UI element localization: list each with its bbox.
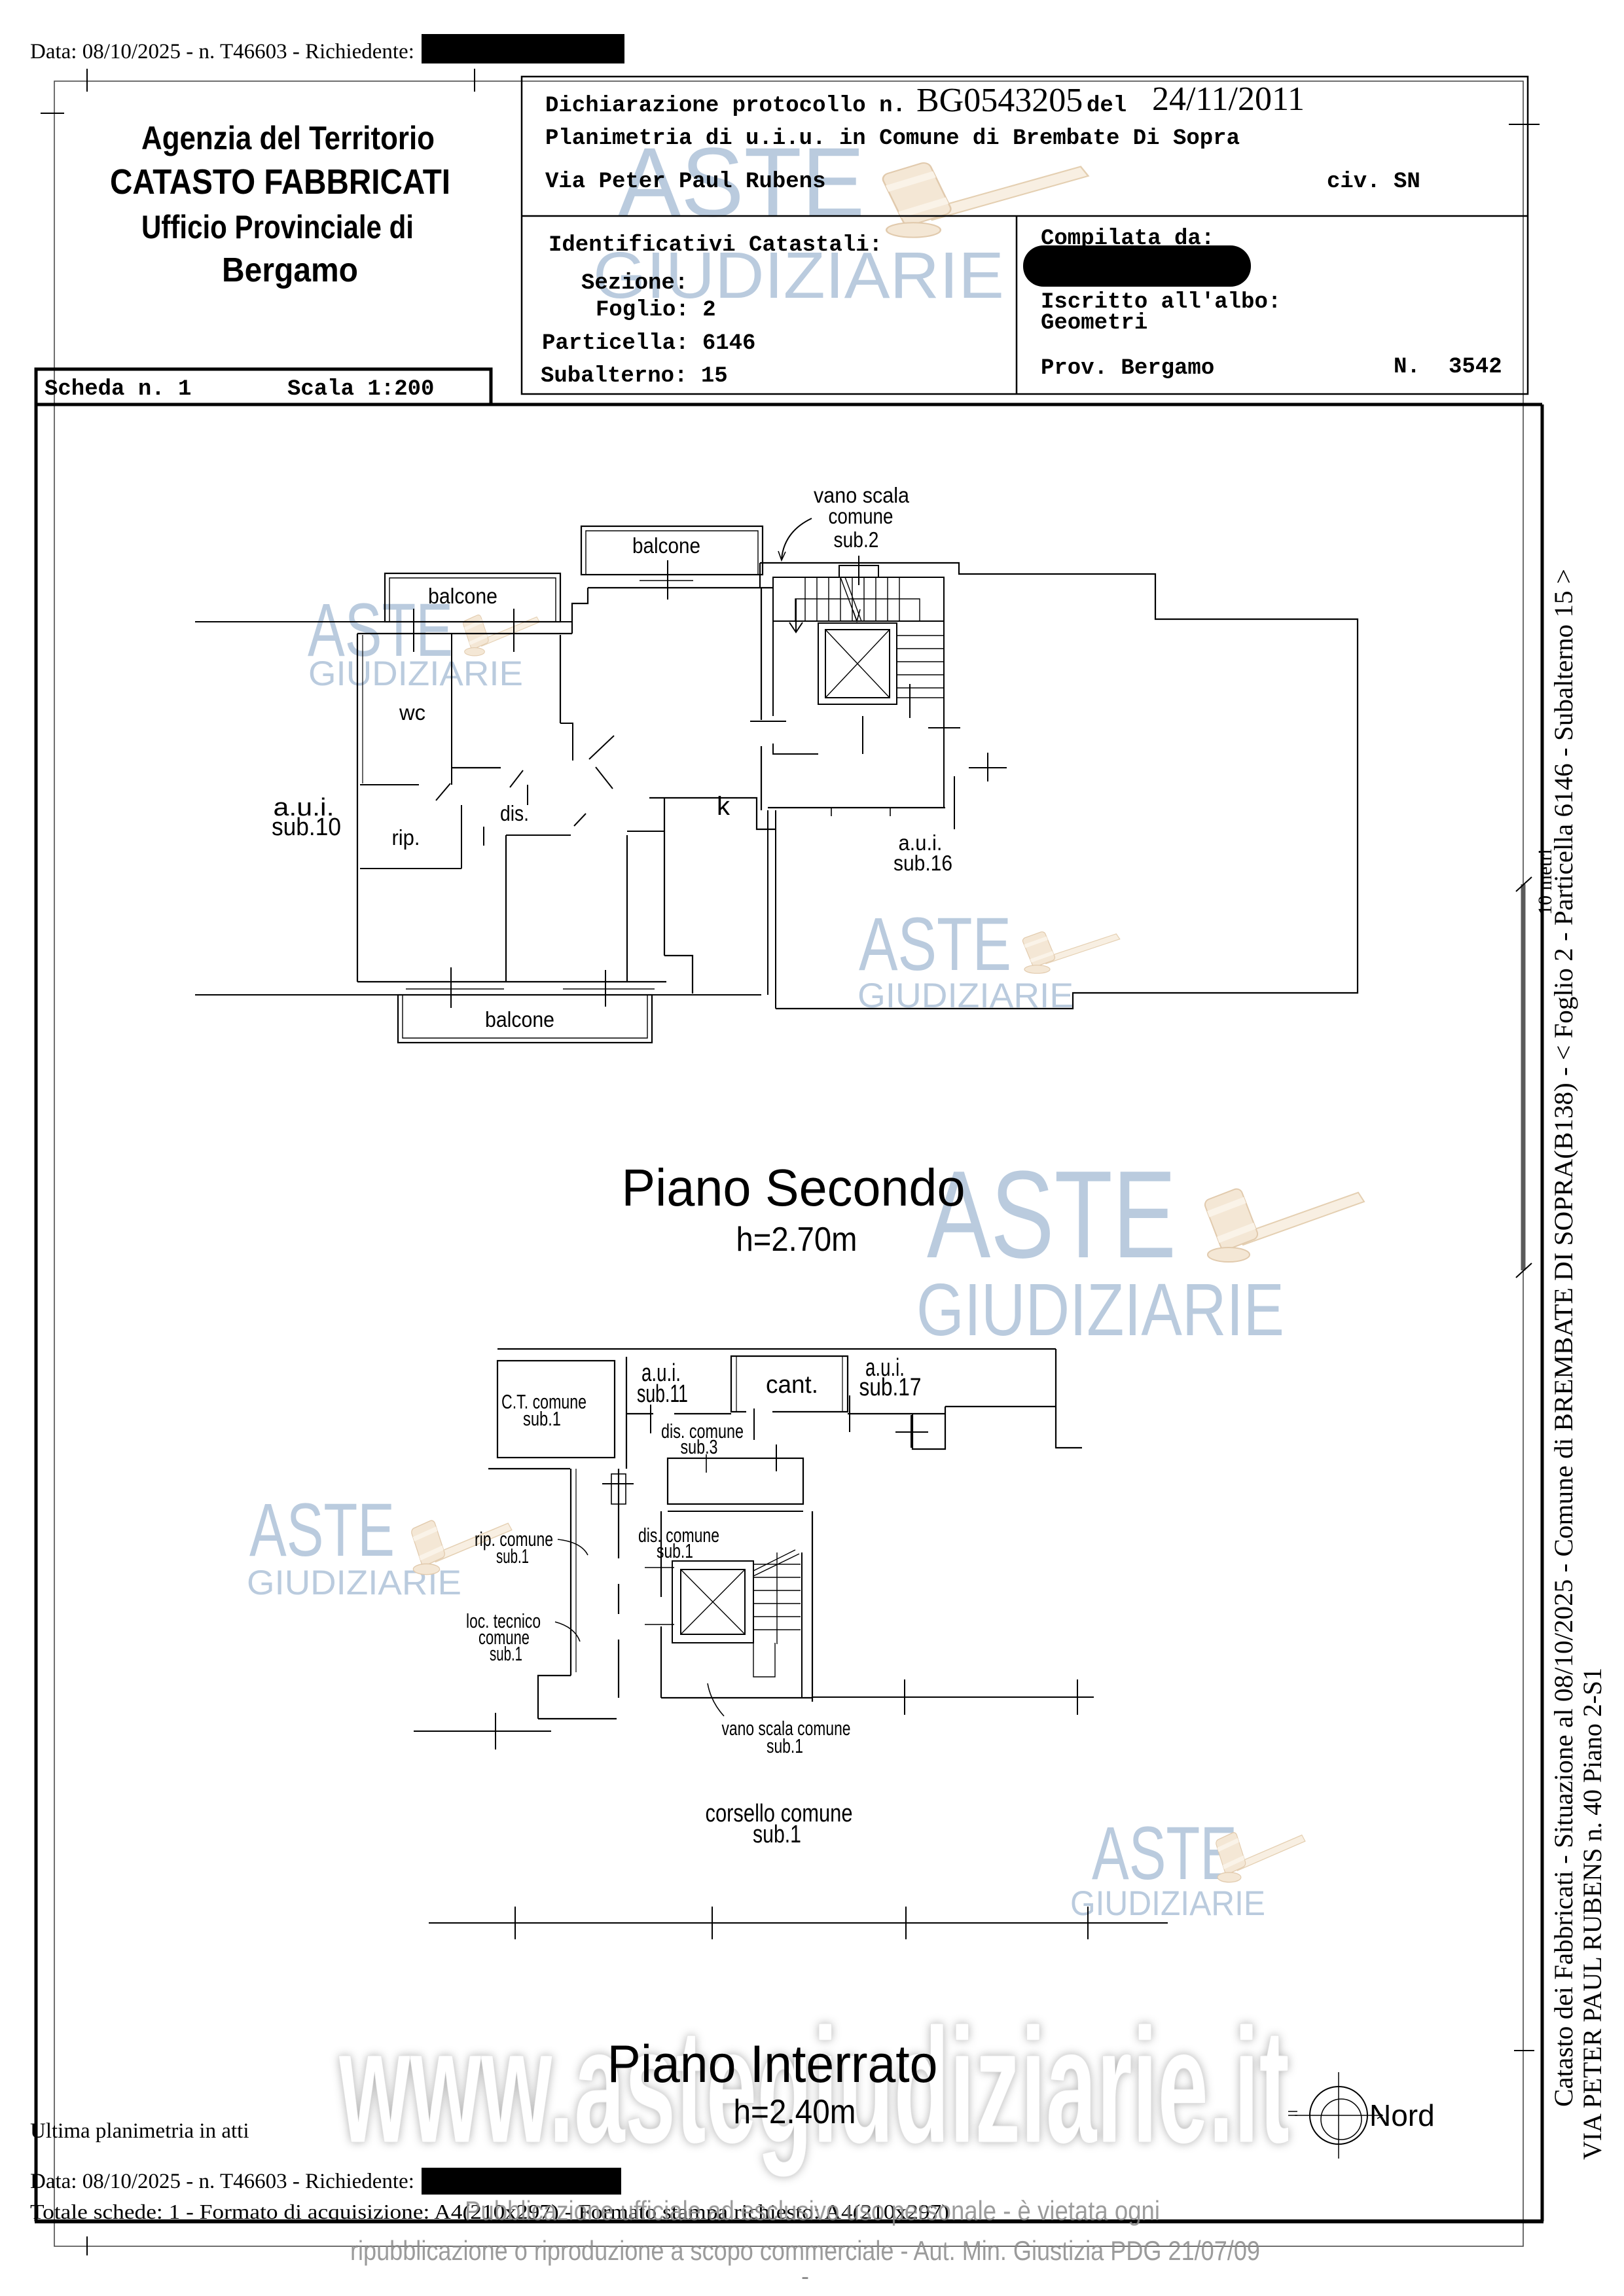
svg-text:sub.11: sub.11 <box>637 1380 688 1408</box>
svg-text:3542: 3542 <box>1449 355 1502 380</box>
svg-text:24/11/2011: 24/11/2011 <box>1152 81 1305 118</box>
svg-text:h=2.70m: h=2.70m <box>736 1221 857 1259</box>
svg-text:sub.1: sub.1 <box>496 1545 529 1568</box>
svg-text:sub.1: sub.1 <box>767 1734 803 1757</box>
svg-text:Sezione:: Sezione: <box>581 271 688 296</box>
svg-text:ASTE: ASTE <box>1092 1812 1237 1895</box>
svg-text:Subalterno: 15: Subalterno: 15 <box>541 364 728 389</box>
svg-text:Ufficio Provinciale di: Ufficio Provinciale di <box>141 209 414 245</box>
svg-text:Agenzia del Territorio: Agenzia del Territorio <box>141 120 435 156</box>
svg-text:Foglio: 2: Foglio: 2 <box>596 298 716 323</box>
svg-text:balcone: balcone <box>428 584 497 608</box>
svg-text:Scheda n. 1: Scheda n. 1 <box>45 377 191 402</box>
svg-text:GIUDIZIARIE: GIUDIZIARIE <box>916 1268 1284 1351</box>
svg-text:Via Peter Paul Rubens: Via Peter Paul Rubens <box>545 170 825 194</box>
svg-text:VIA PETER PAUL RUBENS n. 40 Pi: VIA PETER PAUL RUBENS n. 40 Piano 2-S1 <box>1578 1668 1607 2160</box>
svg-text:ASTE: ASTE <box>859 903 1011 986</box>
svg-text:h=2.40m: h=2.40m <box>734 2093 856 2131</box>
svg-text:Identificativi Catastali:: Identificativi Catastali: <box>549 233 882 258</box>
svg-text:Bergamo: Bergamo <box>222 251 358 289</box>
svg-text:Geometri: Geometri <box>1041 311 1147 336</box>
svg-text:sub.1: sub.1 <box>753 1821 801 1848</box>
svg-text:Planimetria di u.i.u. in Comun: Planimetria di u.i.u. in Comune di Bremb… <box>545 126 1240 151</box>
svg-text:Data: 08/10/2025 - n. T46603 -: Data: 08/10/2025 - n. T46603 - Richieden… <box>30 2170 414 2193</box>
svg-text:Piano Interrato: Piano Interrato <box>607 2035 938 2094</box>
svg-text:Prov. Bergamo: Prov. Bergamo <box>1041 356 1214 381</box>
svg-text:civ. SN: civ. SN <box>1327 170 1420 194</box>
svg-text:Dichiarazione protocollo n.: Dichiarazione protocollo n. <box>545 94 906 118</box>
svg-text:N.: N. <box>1394 355 1420 380</box>
svg-text:balcone: balcone <box>485 1007 554 1031</box>
svg-text:Pubblicazione ufficiale ad esc: Pubblicazione ufficiale ad esclusivo uso… <box>465 2195 1160 2226</box>
svg-text:BG0543205: BG0543205 <box>916 82 1083 119</box>
svg-text:ripubblicazione o riproduzione: ripubblicazione o riproduzione a scopo c… <box>350 2235 1260 2266</box>
svg-text:GIUDIZIARIE: GIUDIZIARIE <box>308 655 523 693</box>
svg-text:sub.10: sub.10 <box>272 814 341 841</box>
svg-text:balcone: balcone <box>632 533 700 558</box>
svg-text:-: - <box>801 2263 809 2289</box>
svg-text:sub.1: sub.1 <box>490 1642 522 1665</box>
svg-text:Catasto dei Fabbricati - Situa: Catasto dei Fabbricati - Situazione al 0… <box>1549 569 1578 2107</box>
svg-text:rip.: rip. <box>392 825 420 850</box>
svg-text:Particella: 6146: Particella: 6146 <box>542 331 755 356</box>
svg-text:wc: wc <box>399 700 425 725</box>
svg-text:ASTE: ASTE <box>249 1488 395 1572</box>
svg-text:GIUDIZIARIE: GIUDIZIARIE <box>857 977 1074 1015</box>
svg-text:GIUDIZIARIE: GIUDIZIARIE <box>1070 1884 1265 1923</box>
svg-text:sub.16: sub.16 <box>893 851 952 875</box>
svg-text:sub.1: sub.1 <box>657 1539 693 1562</box>
svg-text:Nord: Nord <box>1369 2098 1435 2132</box>
svg-text:Data: 08/10/2025 - n. T46603 -: Data: 08/10/2025 - n. T46603 - Richieden… <box>30 40 414 63</box>
svg-text:Piano Secondo: Piano Secondo <box>622 1158 965 1217</box>
svg-text:sub.1: sub.1 <box>523 1407 561 1430</box>
svg-text:sub.17: sub.17 <box>859 1374 922 1401</box>
svg-text:sub.2: sub.2 <box>834 528 879 552</box>
svg-text:k: k <box>717 792 731 821</box>
svg-text:del: del <box>1087 94 1127 118</box>
svg-text:comune: comune <box>829 504 893 528</box>
svg-text:dis.: dis. <box>500 801 529 825</box>
svg-text:Scala 1:200: Scala 1:200 <box>287 377 434 402</box>
svg-text:cant.: cant. <box>766 1371 818 1399</box>
svg-text:CATASTO FABBRICATI: CATASTO FABBRICATI <box>110 162 450 202</box>
svg-text:sub.3: sub.3 <box>681 1435 718 1458</box>
svg-text:Ultima planimetria in atti: Ultima planimetria in atti <box>30 2119 249 2143</box>
